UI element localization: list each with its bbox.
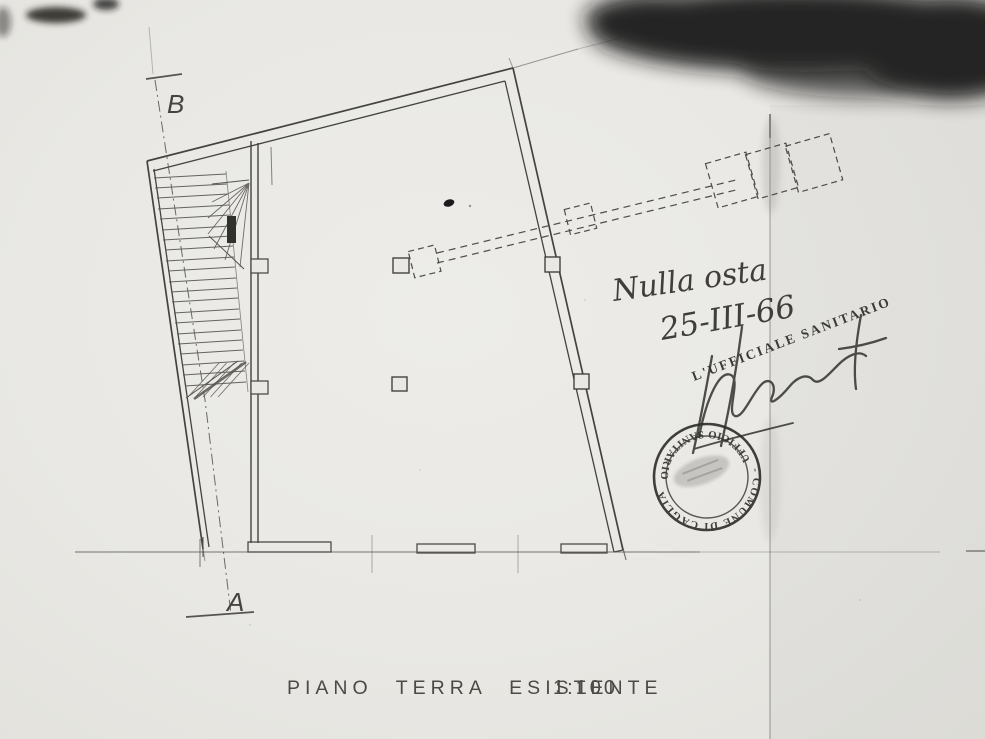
ink-blot <box>443 198 472 208</box>
stamp-arc-bottom: - COMUNE DI CAGLIARI - <box>0 0 774 703</box>
dashed-square <box>564 203 596 235</box>
landing-line <box>271 147 272 185</box>
stamp-arc-bottom-text: - COMUNE DI CAGLIARI - <box>0 0 774 703</box>
landing-edge <box>212 180 249 184</box>
section-marker-bar-top <box>146 74 182 79</box>
column <box>574 374 589 389</box>
bottom-wall-segment <box>248 542 331 552</box>
stairwell-wall <box>251 141 268 543</box>
round-stamp: UFFICIO SANITARIO - COMUNE DI CAGLIARI - <box>0 0 774 703</box>
column <box>392 377 407 391</box>
wall-pilaster <box>251 381 268 394</box>
section-marker-label-b: B <box>167 89 184 119</box>
right-wall-overshoot <box>619 533 626 560</box>
stair-treads <box>154 174 246 386</box>
stair-stringer <box>226 171 248 392</box>
dashed-square <box>408 245 441 278</box>
stair-newel-wall <box>227 216 236 243</box>
section-line-extension <box>149 27 153 74</box>
inner-wall-lines <box>153 81 614 552</box>
wall-pilaster <box>251 259 268 273</box>
stamp-emblem-smudge <box>670 449 733 493</box>
columns <box>392 257 589 391</box>
corner-overshoot-tick <box>509 58 513 68</box>
floor-plan-drawing: B A Nulla osta 25-III-66 L'UFFICIALE SAN… <box>0 0 985 739</box>
top-wall-extension <box>513 49 578 68</box>
paper-tone-right-of-fold <box>770 105 985 739</box>
scan-artifact-top-right <box>585 0 985 100</box>
title-caption: PIANO TERRA ESISTENTE 1:100 <box>287 677 663 699</box>
column <box>393 258 409 273</box>
overhang-dashed-lines <box>437 179 740 263</box>
winder-boundary <box>209 236 244 269</box>
outer-wall-lines <box>147 68 623 550</box>
section-marker-label-a: A <box>225 587 244 617</box>
scanned-floor-plan-page: B A Nulla osta 25-III-66 L'UFFICIALE SAN… <box>0 0 985 739</box>
column <box>545 257 560 272</box>
dashed-square <box>705 152 758 208</box>
plan-scale: 1:100 <box>553 677 618 699</box>
lower-flight-edge <box>186 361 238 398</box>
scan-artifact-top-left <box>0 0 119 37</box>
section-cut-line <box>155 80 231 614</box>
